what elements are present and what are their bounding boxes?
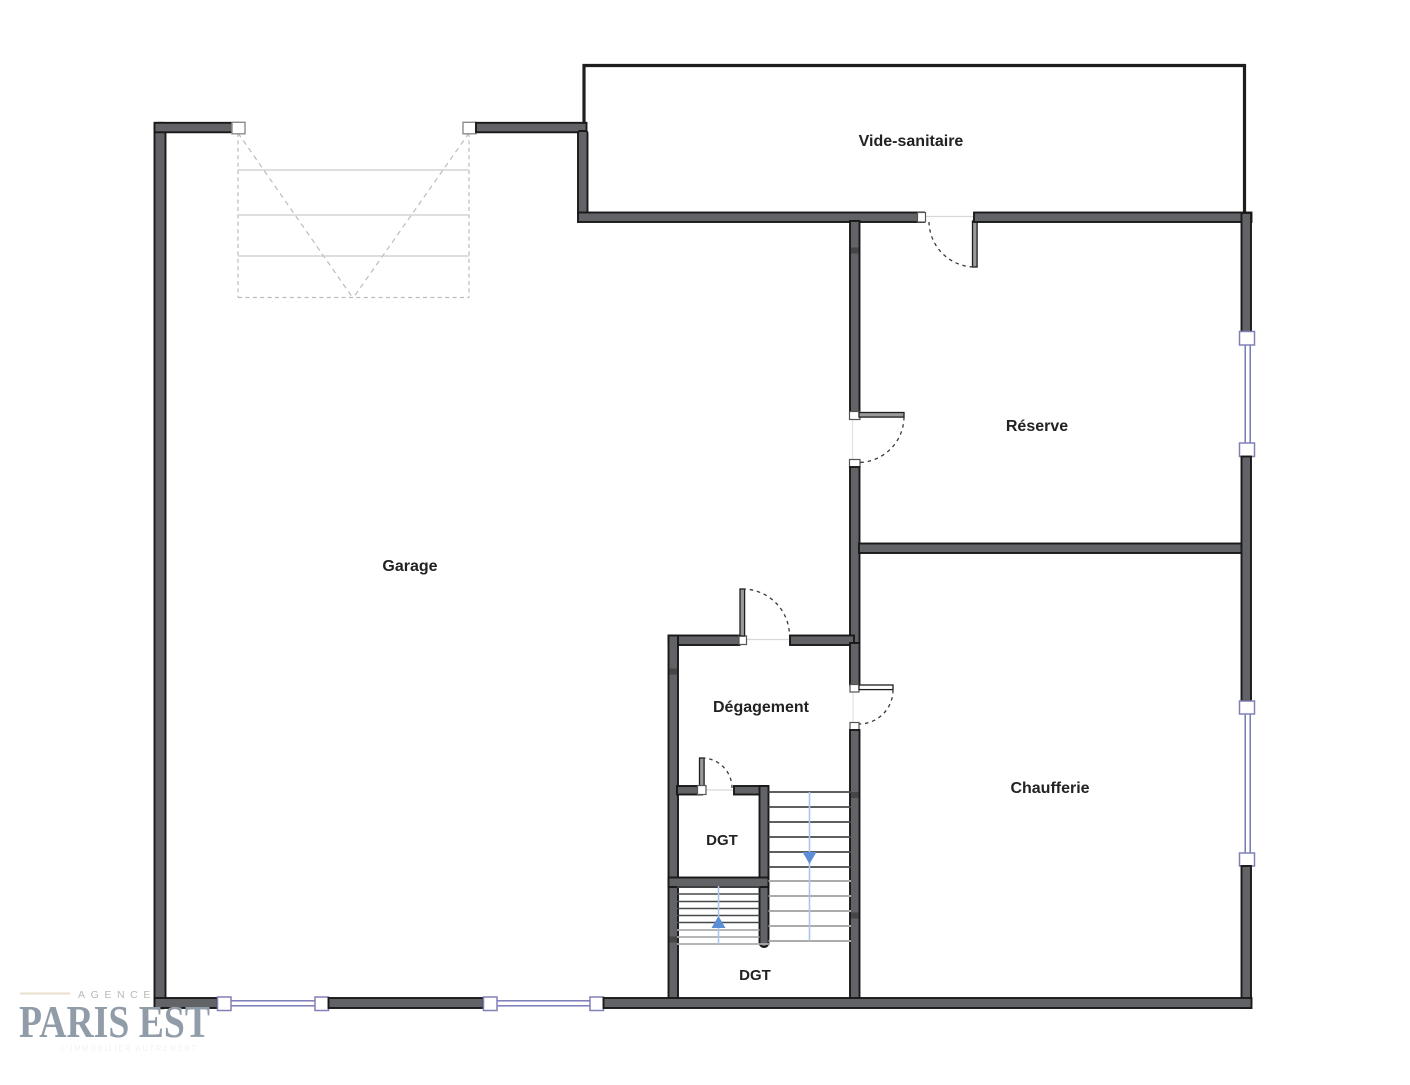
svg-text:Vide-sanitaire: Vide-sanitaire <box>859 133 964 150</box>
svg-text:L'IMMOBILIER AUTREMENT: L'IMMOBILIER AUTREMENT <box>61 1044 198 1053</box>
svg-text:Dégagement: Dégagement <box>713 699 810 716</box>
svg-text:Garage: Garage <box>382 558 437 575</box>
svg-text:PARIS EST: PARIS EST <box>19 996 210 1047</box>
svg-text:DGT: DGT <box>706 832 738 849</box>
svg-text:DGT: DGT <box>739 967 771 984</box>
svg-text:Chaufferie: Chaufferie <box>1010 780 1089 797</box>
svg-text:Réserve: Réserve <box>1006 418 1068 435</box>
